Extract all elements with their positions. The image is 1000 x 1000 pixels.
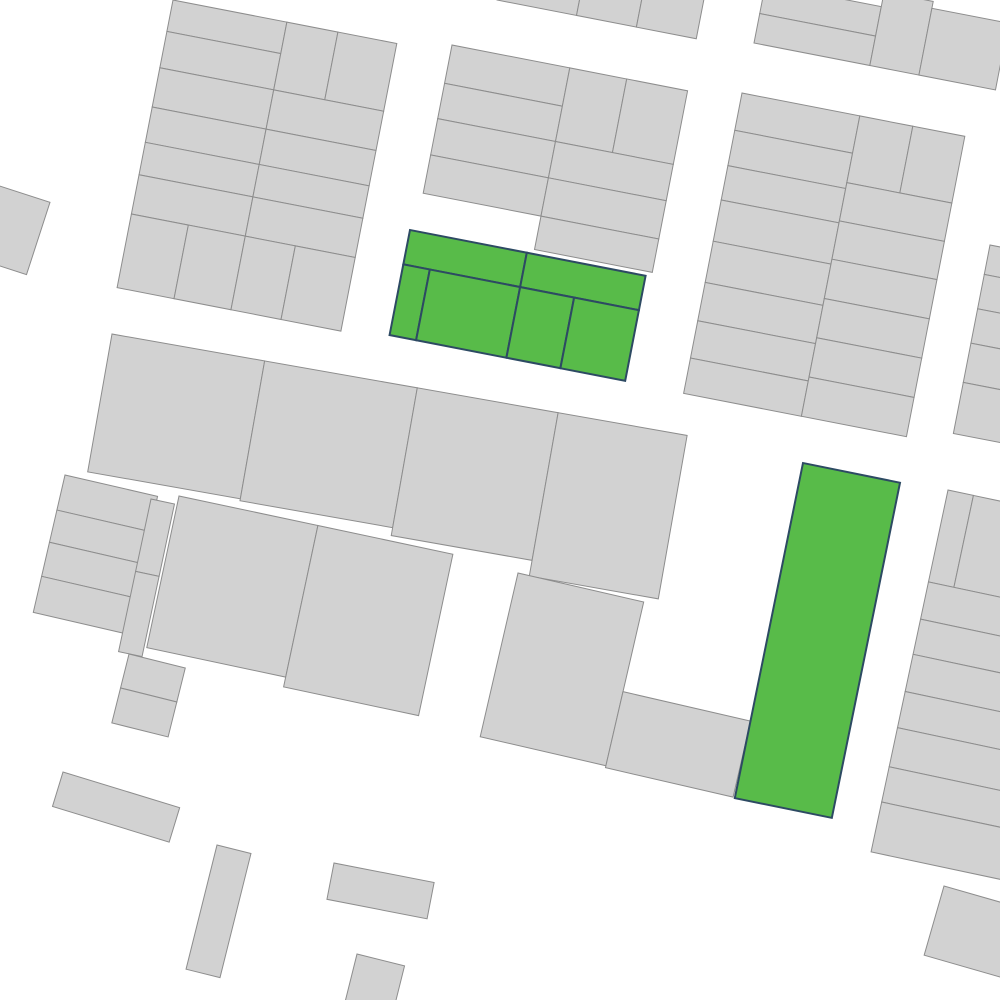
parcel[interactable] [88, 334, 265, 499]
parcel[interactable] [325, 32, 397, 111]
parcel[interactable] [919, 8, 1000, 90]
map-viewport[interactable] [0, 0, 1000, 1000]
highlighted-parcel[interactable] [560, 298, 639, 381]
parcel[interactable] [240, 361, 417, 528]
parcel[interactable] [391, 388, 558, 561]
parcel-map [0, 0, 1000, 1000]
parcel[interactable] [529, 413, 687, 599]
